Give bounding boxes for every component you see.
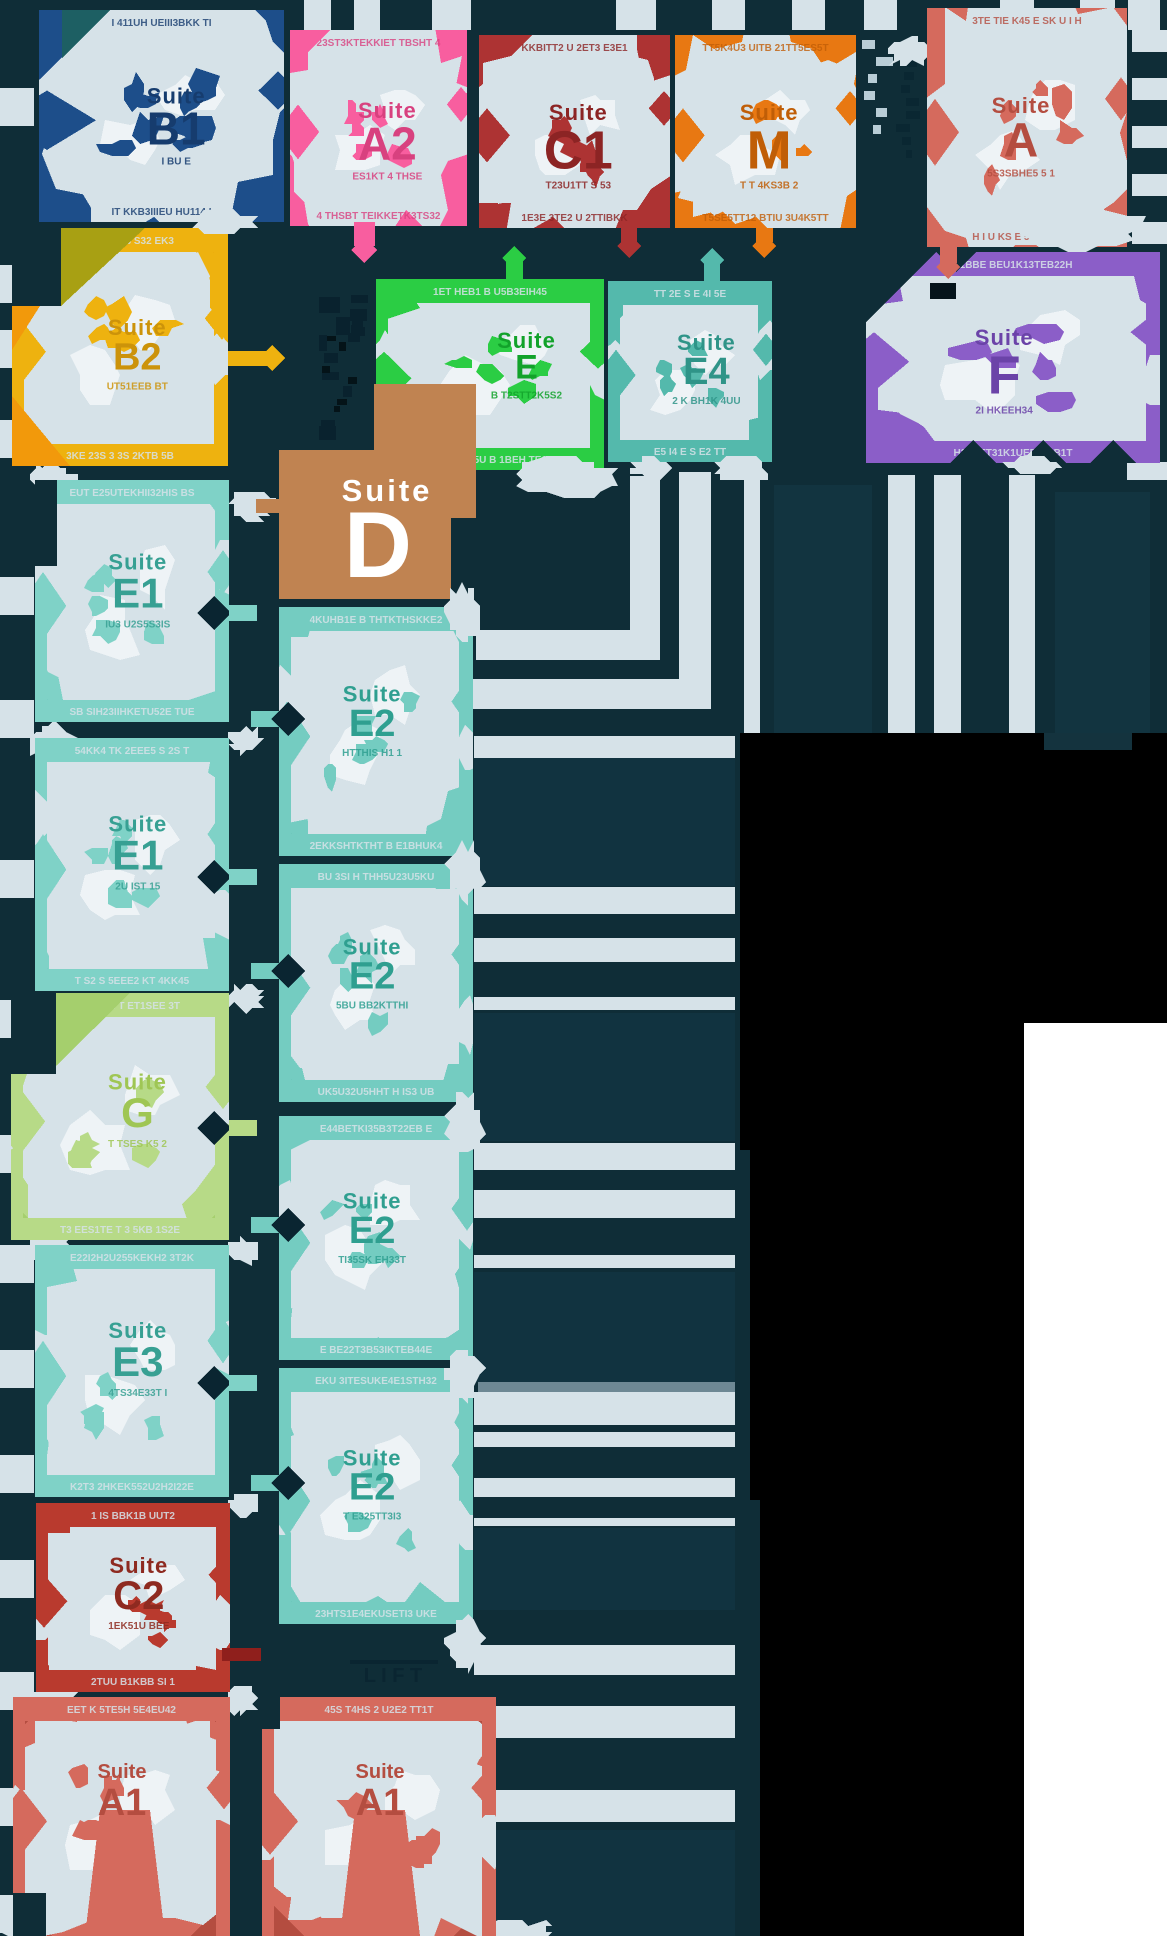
svg-text:SB SIH23IIHKETU52E TUE: SB SIH23IIHKETU52E TUE	[69, 707, 194, 718]
svg-text:2U IST 15: 2U IST 15	[115, 881, 160, 892]
svg-text:IU3 U2S5S3IS: IU3 U2S5S3IS	[105, 619, 170, 630]
svg-text:E2: E2	[349, 1210, 395, 1252]
svg-text:A2: A2	[358, 118, 417, 170]
svg-text:E1: E1	[112, 569, 163, 616]
svg-text:T E325TT3I3: T E325TT3I3	[343, 1511, 402, 1522]
svg-text:23ST3KTEKKIET TBSHT 4: 23ST3KTEKKIET TBSHT 4	[317, 38, 441, 49]
svg-text:E44BETKI35B3T22EB E: E44BETKI35B3T22EB E	[320, 1124, 433, 1135]
svg-text:UT51EEB BT: UT51EEB BT	[107, 381, 168, 392]
svg-text:E: E	[515, 348, 538, 386]
svg-text:TI35SK EH33T: TI35SK EH33T	[338, 1255, 406, 1266]
svg-text:3TE TIE K45 E SK U I H: 3TE TIE K45 E SK U I H	[972, 16, 1081, 27]
svg-text:B T2STT2K5S2: B T2STT2K5S2	[491, 390, 563, 401]
svg-text:4KUHB1E B THTKTHSKKE2: 4KUHB1E B THTKTHSKKE2	[310, 615, 443, 626]
svg-text:T5SE5TT12 BTIU 3U4K5TT: T5SE5TT12 BTIU 3U4K5TT	[702, 213, 828, 224]
svg-text:1EK51U BEE: 1EK51U BEE	[108, 1621, 169, 1632]
svg-text:E2: E2	[349, 703, 395, 745]
svg-text:3KE 23S 3 3S 2KTB 5B: 3KE 23S 3 3S 2KTB 5B	[66, 451, 174, 462]
svg-text:A1: A1	[356, 1782, 405, 1824]
svg-text:T1BBE BEU1K13TEB22H: T1BBE BEU1K13TEB22H	[954, 260, 1073, 271]
svg-text:A1: A1	[98, 1782, 147, 1824]
svg-text:HTTHIS H1 1: HTTHIS H1 1	[342, 748, 402, 759]
svg-text:F: F	[988, 345, 1021, 405]
svg-text:C1: C1	[544, 121, 613, 181]
svg-text:ES1KT 4 THSE: ES1KT 4 THSE	[352, 172, 422, 183]
svg-text:2TUU B1KBB SI 1: 2TUU B1KBB SI 1	[91, 1677, 175, 1688]
svg-text:2 K BH1K 4UU: 2 K BH1K 4UU	[672, 396, 740, 407]
svg-text:D: D	[344, 492, 412, 597]
svg-text:Suite: Suite	[98, 1761, 147, 1783]
svg-text:54KK4 TK 2EEE5 S 2S T: 54KK4 TK 2EEE5 S 2S T	[75, 746, 190, 757]
svg-text:T T 4KS3B 2: T T 4KS3B 2	[740, 181, 799, 192]
svg-text:E5 I4 E S E2 TT: E5 I4 E S E2 TT	[654, 447, 726, 458]
svg-text:T S2 S 5EEE2 KT 4KK45: T S2 S 5EEE2 KT 4KK45	[75, 976, 190, 987]
svg-text:KKBITT2 U 2ET3 E3E1: KKBITT2 U 2ET3 E3E1	[521, 43, 628, 54]
svg-text:E BE22T3B53IKTEB44E: E BE22T3B53IKTEB44E	[320, 1345, 433, 1356]
svg-text:4TS34E33T I: 4TS34E33T I	[108, 1388, 167, 1399]
svg-text:23HTS1E4EKUSETI3 UKE: 23HTS1E4EKUSETI3 UKE	[315, 1609, 437, 1620]
svg-text:4 THSBT TEIKKETK3TS32: 4 THSBT TEIKKETK3TS32	[317, 211, 441, 222]
svg-text:L I F T: L I F T	[364, 1665, 423, 1687]
svg-text:E2: E2	[349, 956, 395, 998]
svg-text:C2: C2	[113, 1574, 164, 1618]
svg-text:1E3E 3TE2 U 2TTIBKK: 1E3E 3TE2 U 2TTIBKK	[521, 213, 628, 224]
svg-text:I BU E: I BU E	[161, 157, 191, 168]
svg-text:T TSES K5 2: T TSES K5 2	[108, 1139, 167, 1150]
svg-text:E22I2H2U255KEKH2 3T2K: E22I2H2U255KEKH2 3T2K	[70, 1253, 195, 1264]
svg-text:BU 3SI H THH5U23U5KU: BU 3SI H THH5U23U5KU	[318, 872, 435, 883]
svg-text:TT5K4U3 UITB 21TT5ES5T: TT5K4U3 UITB 21TT5ES5T	[702, 43, 828, 54]
svg-text:1 IS BBK1B UUT2: 1 IS BBK1B UUT2	[91, 1511, 175, 1522]
svg-text:TT 2E S E 4I 5E: TT 2E S E 4I 5E	[654, 289, 727, 300]
svg-text:45S T4HS 2 U2E2 TT1T: 45S T4HS 2 U2E2 TT1T	[325, 1705, 434, 1716]
svg-text:EKU 3ITESUKE4E1STH32: EKU 3ITESUKE4E1STH32	[315, 1376, 437, 1387]
svg-text:I 411UH UEIII3BKK TI: I 411UH UEIII3BKK TI	[111, 18, 211, 29]
svg-text:B1: B1	[147, 103, 206, 155]
svg-text:UK5U32U5HHT H IS3 UB: UK5U32U5HHT H IS3 UB	[318, 1087, 435, 1098]
svg-text:E4: E4	[683, 351, 729, 393]
svg-text:E1: E1	[112, 831, 163, 878]
svg-text:5BU BB2KTTHI: 5BU BB2KTTHI	[336, 1001, 408, 1012]
svg-text:EET K 5TE5H 5E4EU42: EET K 5TE5H 5E4EU42	[67, 1705, 176, 1716]
svg-text:EUT E25UTEKHII32HIS BS: EUT E25UTEKHII32HIS BS	[69, 488, 194, 499]
svg-text:Suite: Suite	[356, 1761, 405, 1783]
svg-text:E2: E2	[349, 1466, 395, 1508]
svg-text:2I HKEEH34: 2I HKEEH34	[976, 405, 1034, 416]
svg-text:1ET HEB1 B U5B3EIH45: 1ET HEB1 B U5B3EIH45	[433, 287, 547, 298]
svg-text:M: M	[747, 121, 792, 181]
svg-text:K2T3 2HKEK552U2H2I22E: K2T3 2HKEK552U2H2I22E	[70, 1482, 194, 1493]
svg-text:T23U1TT S 53: T23U1TT S 53	[546, 181, 612, 192]
svg-text:5S3SBHE5 5 1: 5S3SBHE5 5 1	[987, 168, 1055, 179]
svg-text:B2: B2	[113, 336, 162, 378]
svg-text:2EKKSHTKTHT B E1BHUK4: 2EKKSHTKTHT B E1BHUK4	[310, 841, 443, 852]
svg-text:T3 EES1TE T 3 5KB 1S2E: T3 EES1TE T 3 5KB 1S2E	[60, 1225, 180, 1236]
svg-text:E3: E3	[112, 1338, 163, 1385]
svg-text:A: A	[1004, 114, 1039, 167]
svg-text:G: G	[121, 1089, 154, 1136]
